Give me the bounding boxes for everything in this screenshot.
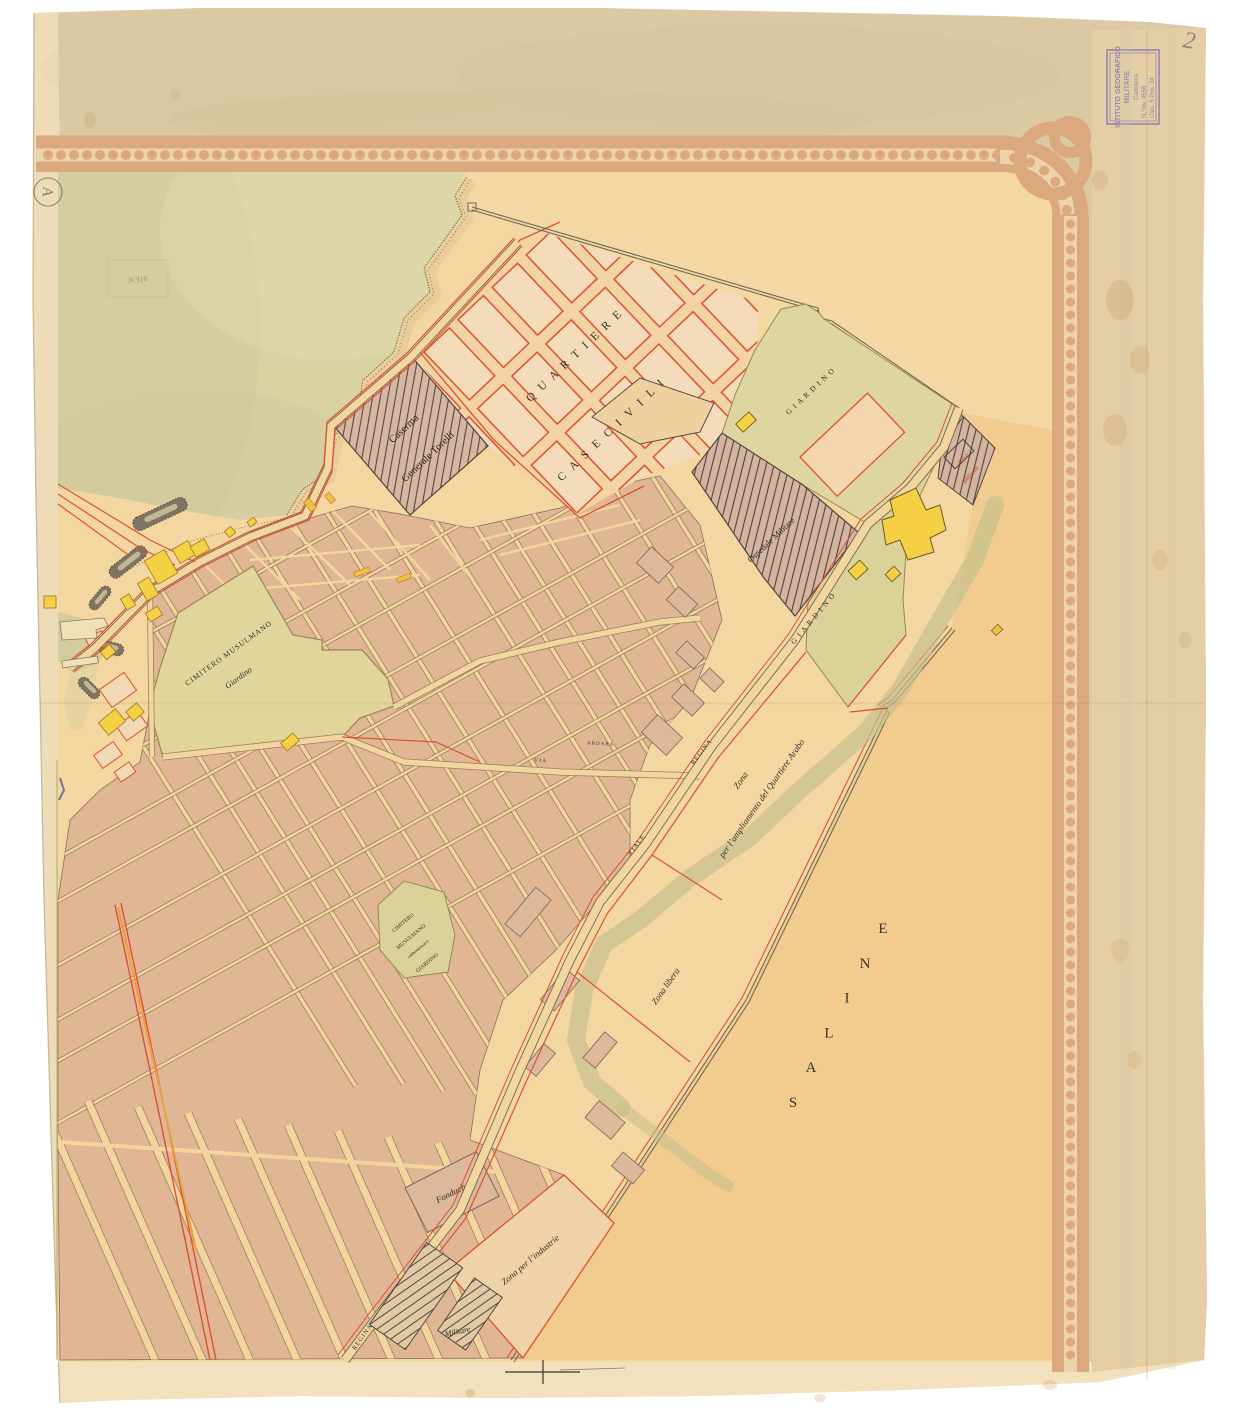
svg-text:A: A [39,186,56,198]
svg-text:I: I [845,991,850,1007]
svg-text:A: A [806,1060,817,1076]
svg-text:L: L [824,1025,833,1041]
svg-text:N: N [860,956,871,972]
svg-text:V I A: V I A [534,758,546,765]
svg-text:E: E [878,921,887,937]
svg-text:S: S [789,1095,797,1111]
svg-text:Clas. 5 Pos. 34: Clas. 5 Pos. 34 [1150,77,1156,118]
svg-text:N 316: N 316 [127,274,148,285]
svg-text:Cartoteca: Cartoteca [1134,73,1140,100]
